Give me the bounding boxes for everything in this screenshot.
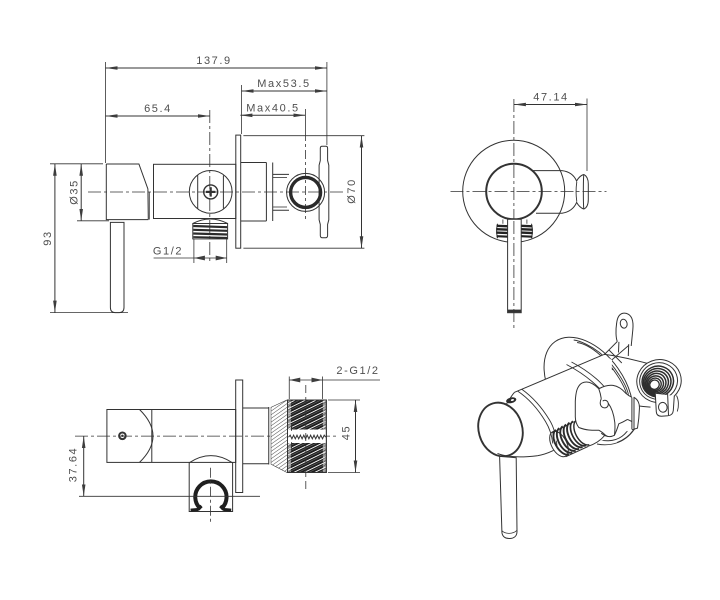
svg-text:37.64: 37.64: [68, 447, 80, 483]
svg-text:2-G1/2: 2-G1/2: [336, 365, 379, 377]
svg-text:G1/2: G1/2: [153, 246, 183, 258]
svg-text:45: 45: [341, 425, 353, 440]
svg-text:93: 93: [42, 230, 54, 245]
svg-text:Max40.5: Max40.5: [246, 103, 299, 115]
svg-text:Ø70: Ø70: [346, 178, 358, 204]
svg-text:137.9: 137.9: [196, 55, 232, 67]
svg-text:47.14: 47.14: [533, 92, 569, 104]
svg-text:Ø35: Ø35: [69, 179, 81, 205]
svg-text:Max53.5: Max53.5: [257, 78, 310, 90]
svg-text:65.4: 65.4: [144, 103, 172, 115]
